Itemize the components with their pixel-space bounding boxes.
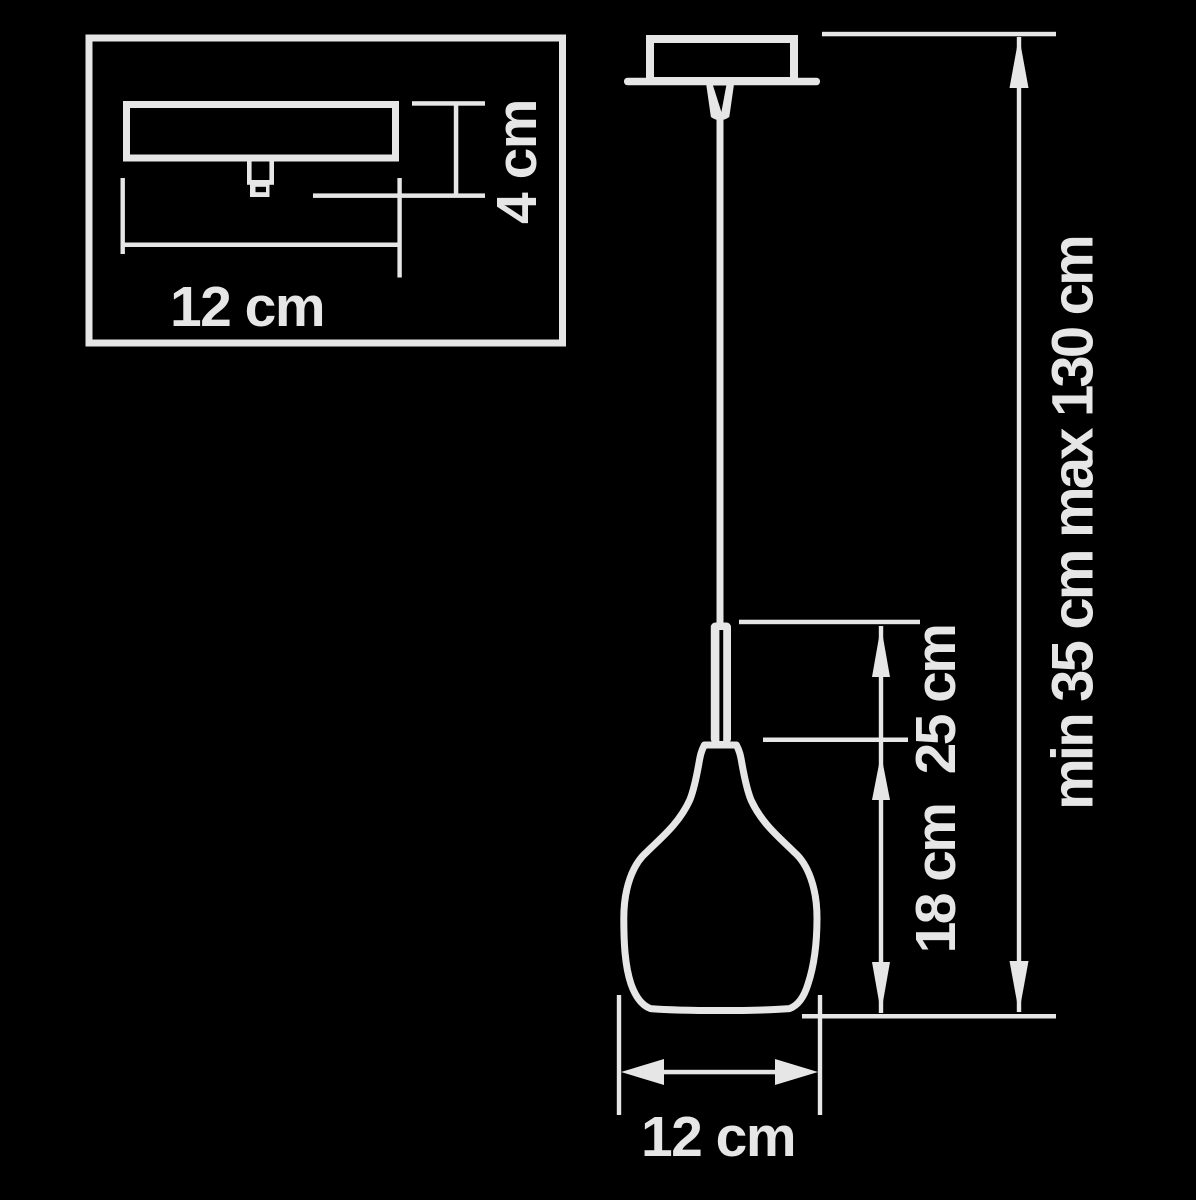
- svg-text:12 cm: 12 cm: [170, 275, 324, 339]
- svg-text:25 cm: 25 cm: [904, 626, 968, 775]
- svg-text:4 cm: 4 cm: [485, 100, 549, 224]
- svg-text:min 35 cm max 130 cm: min 35 cm max 130 cm: [1041, 237, 1106, 810]
- svg-text:12 cm: 12 cm: [641, 1105, 795, 1169]
- svg-text:18 cm: 18 cm: [904, 805, 968, 954]
